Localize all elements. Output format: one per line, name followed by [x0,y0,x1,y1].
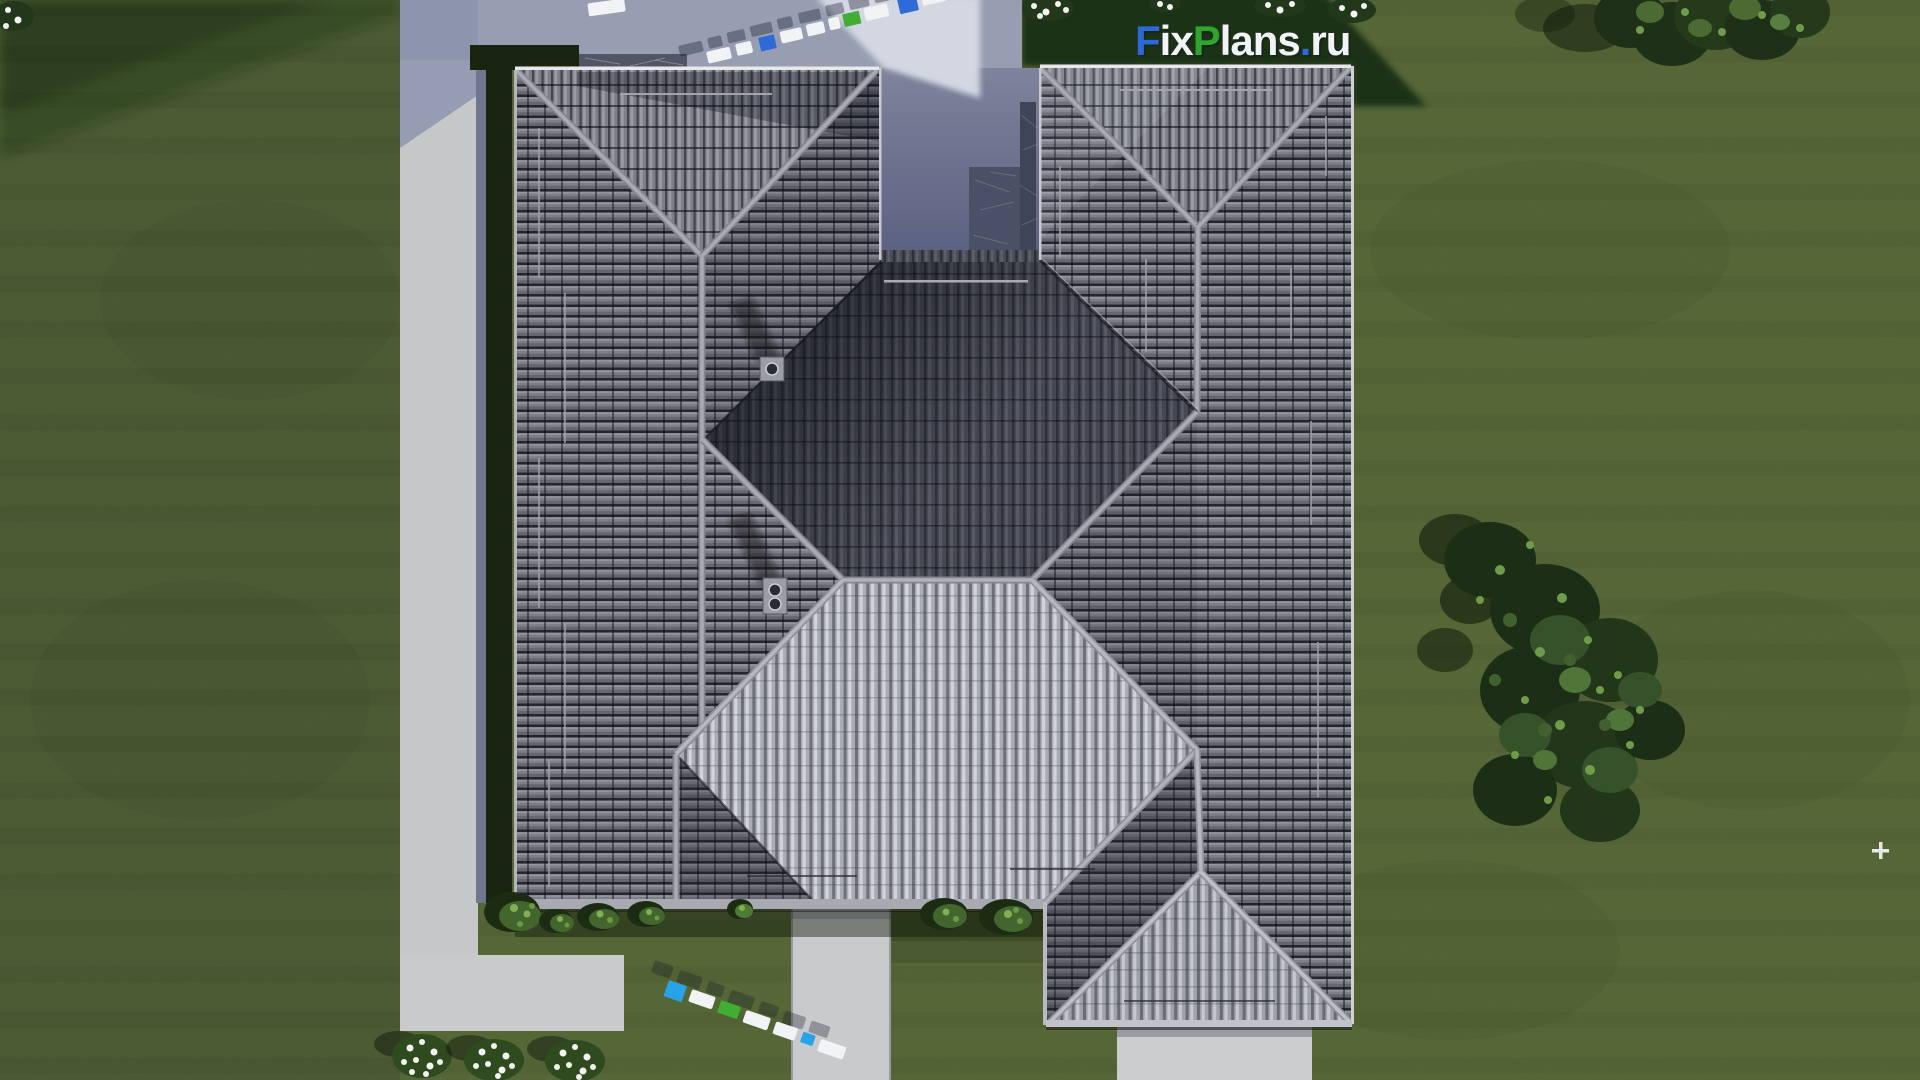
svg-text:FixPlans.ru: FixPlans.ru [1135,17,1350,64]
